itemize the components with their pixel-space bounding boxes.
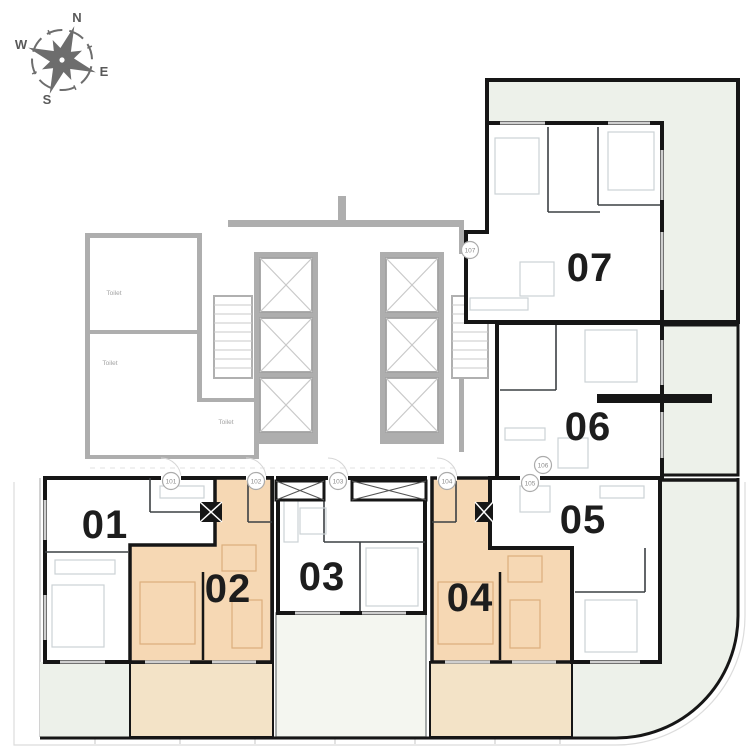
unit-06-balcony-divider bbox=[597, 394, 712, 403]
door-tag-104: 104 bbox=[439, 473, 456, 490]
door-tag-107: 107 bbox=[462, 242, 479, 259]
compass-north-label: N bbox=[72, 10, 81, 25]
compass-rose: N E S W bbox=[15, 10, 109, 107]
unit-03-label: 03 bbox=[299, 555, 346, 599]
door-tag-106: 106 bbox=[535, 457, 552, 474]
balcony-04 bbox=[430, 662, 572, 737]
door-tag-101-label: 101 bbox=[166, 479, 177, 486]
unit-01-label: 01 bbox=[82, 503, 129, 547]
door-tag-104-label: 104 bbox=[442, 479, 453, 486]
door-tag-107-label: 107 bbox=[465, 248, 476, 255]
door-tag-103: 103 bbox=[330, 473, 347, 490]
toilet-label-3: Toilet bbox=[218, 419, 233, 426]
terrace-below-01 bbox=[40, 662, 130, 737]
unit-06-label: 06 bbox=[565, 405, 612, 449]
compass-west-label: W bbox=[15, 37, 28, 52]
door-tag-103-label: 103 bbox=[333, 479, 344, 486]
elevator-bank-right bbox=[380, 252, 444, 444]
unit-07[interactable]: 07 bbox=[466, 123, 662, 322]
unit-04-label: 04 bbox=[447, 576, 494, 620]
unit-05-label: 05 bbox=[560, 498, 607, 542]
unit-02-label: 02 bbox=[205, 567, 252, 611]
door-tag-102: 102 bbox=[248, 473, 265, 490]
toilet-label-2: Toilet bbox=[102, 360, 117, 367]
elevator-bank-left bbox=[254, 252, 318, 444]
balcony-02 bbox=[130, 662, 273, 737]
toilet-label-1: Toilet bbox=[106, 290, 121, 297]
compass-south-label: S bbox=[43, 92, 52, 107]
compass-east-label: E bbox=[100, 64, 109, 79]
compass-star bbox=[16, 14, 108, 106]
balcony-03 bbox=[276, 613, 426, 737]
door-tag-105: 105 bbox=[522, 475, 539, 492]
unit-07-label: 07 bbox=[567, 246, 614, 290]
floor-plan-page: Toilet Toilet Toilet 07 bbox=[0, 0, 750, 750]
floor-plan-canvas: Toilet Toilet Toilet 07 bbox=[0, 0, 750, 750]
door-tag-106-label: 106 bbox=[538, 463, 549, 470]
door-tag-102-label: 102 bbox=[251, 479, 262, 486]
stairs-left bbox=[214, 296, 252, 378]
door-tag-105-label: 105 bbox=[525, 481, 536, 488]
door-tag-101: 101 bbox=[163, 473, 180, 490]
